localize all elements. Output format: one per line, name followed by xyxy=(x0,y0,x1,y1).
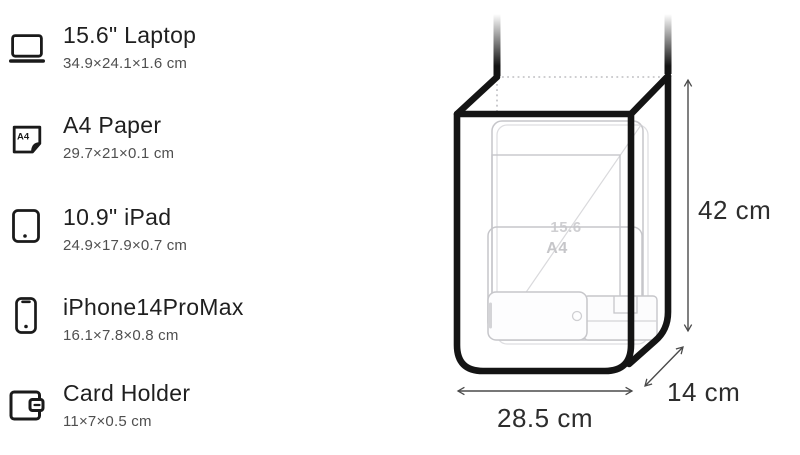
width-dimension-label: 28.5 cm xyxy=(497,403,593,433)
ghost-card-holder xyxy=(584,296,657,340)
bag-diagram: 15.6 A4 xyxy=(0,0,800,455)
height-dimension-label: 42 cm xyxy=(698,195,771,225)
ghost-a4-label: A4 xyxy=(546,240,567,257)
bag-capacity-infographic: 15.6" Laptop 34.9×24.1×1.6 cm A4 A4 Pape… xyxy=(0,0,800,455)
bag-top-right-edge xyxy=(631,76,668,114)
ghost-iphone xyxy=(488,292,587,340)
depth-dimension-label: 14 cm xyxy=(667,377,740,407)
bag-top-left-edge xyxy=(457,77,497,114)
